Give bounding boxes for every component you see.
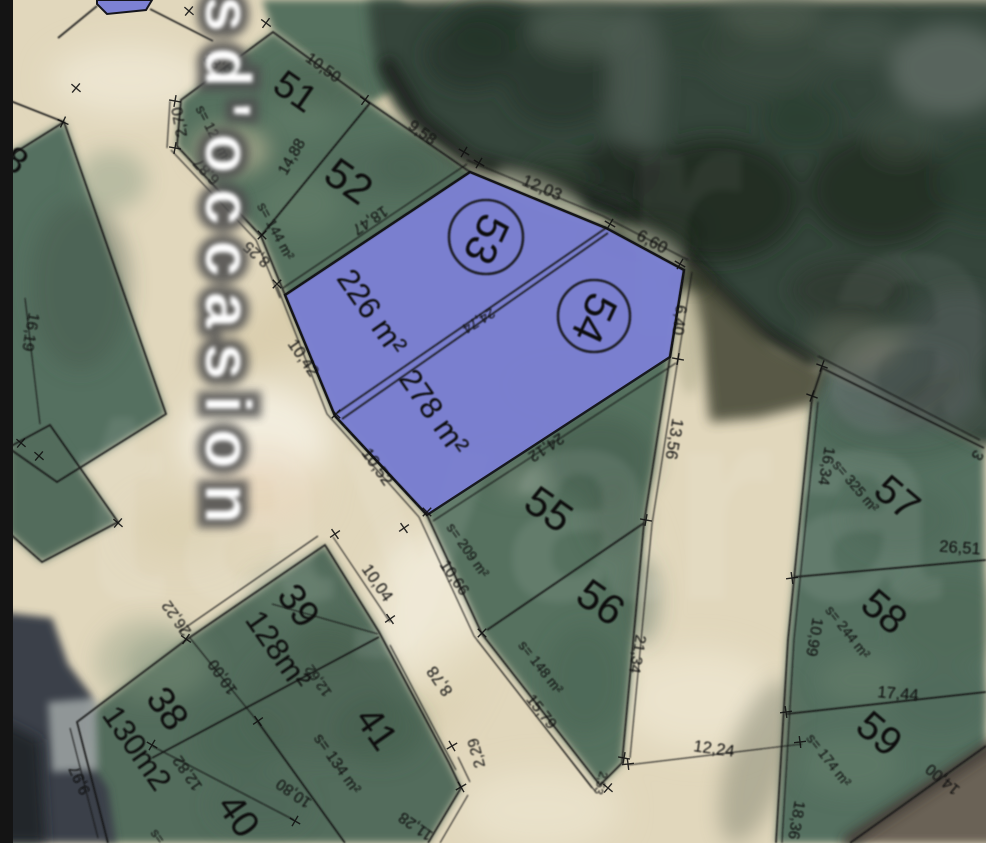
svg-text:sd'occasion: sd'occasion: [192, 0, 264, 539]
svg-text:a: a: [820, 131, 1000, 500]
svg-text:26,51: 26,51: [939, 538, 981, 559]
svg-text:17,44: 17,44: [877, 683, 920, 705]
